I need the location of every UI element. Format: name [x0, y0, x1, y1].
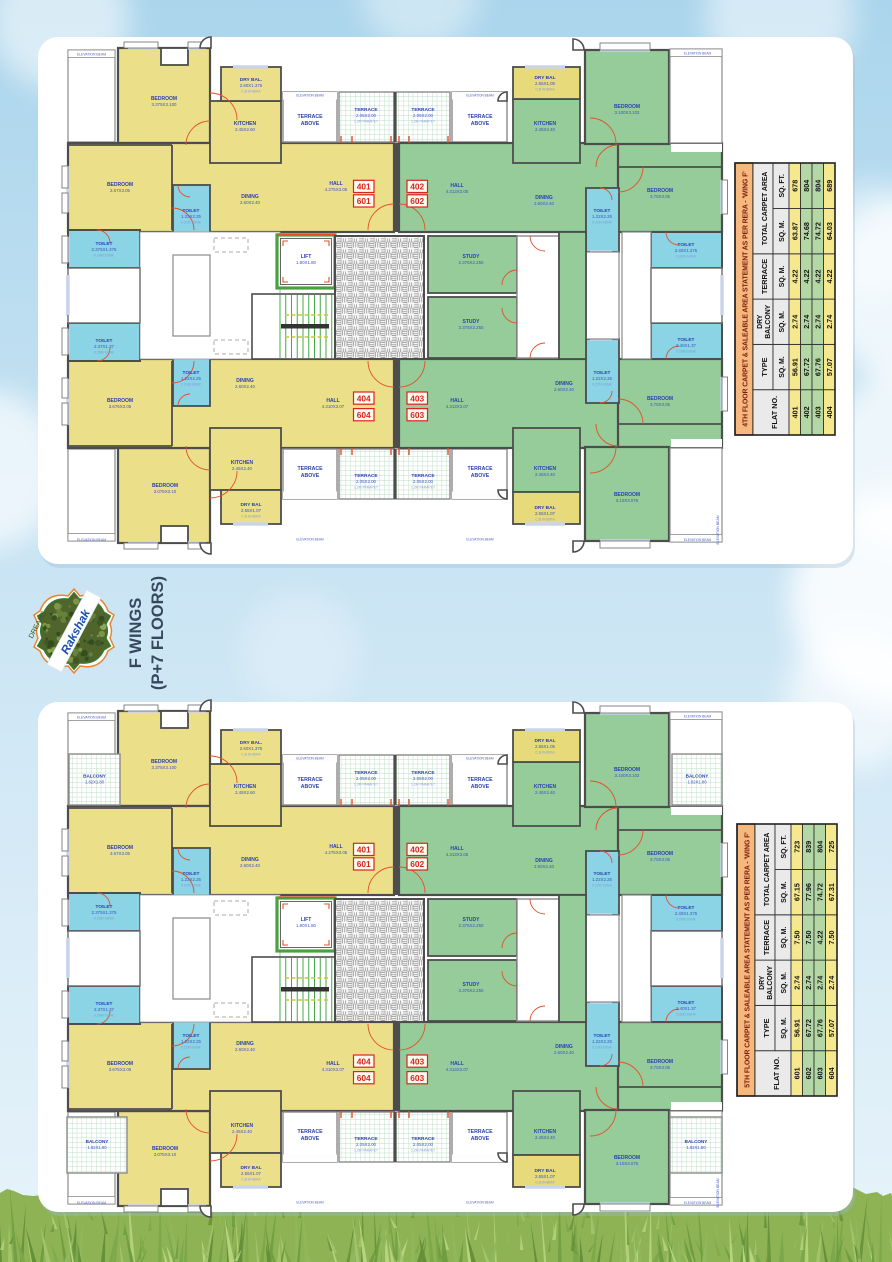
svg-text:3.67X3.05: 3.67X3.05 — [110, 851, 131, 856]
svg-text:839: 839 — [804, 841, 813, 853]
svg-text:3.10X3.075: 3.10X3.075 — [616, 1161, 639, 1166]
svg-text:TOILET: TOILET — [96, 338, 113, 344]
svg-text:SQ. M.: SQ. M. — [781, 1017, 788, 1039]
svg-text:ELEVATION BEAM: ELEVATION BEAM — [716, 1178, 720, 1207]
svg-text:804: 804 — [814, 180, 823, 192]
svg-text:804: 804 — [802, 180, 811, 192]
svg-text:74.72: 74.72 — [816, 883, 825, 901]
svg-text:TERRACE: TERRACE — [467, 466, 493, 472]
svg-text:67.15: 67.15 — [793, 883, 802, 901]
svg-text:2.375X1.375: 2.375X1.375 — [92, 247, 117, 252]
svg-text:ELEVATION BEAM: ELEVATION BEAM — [684, 538, 712, 542]
svg-text:1.2M PARAPET: 1.2M PARAPET — [354, 486, 378, 490]
svg-text:4TH FLOOR CARPET & SALEABLE AR: 4TH FLOOR CARPET & SALEABLE AREA STATEME… — [743, 171, 750, 427]
svg-text:1.82X1.80: 1.82X1.80 — [687, 780, 707, 785]
svg-text:57.07: 57.07 — [825, 358, 834, 376]
svg-text:STUDY: STUDY — [463, 319, 481, 325]
svg-text:5TH FLOOR CARPET & SALEABLE AR: 5TH FLOOR CARPET & SALEABLE AREA STATEME… — [745, 832, 752, 1088]
svg-text:STUDY: STUDY — [463, 917, 481, 923]
svg-text:TOILET: TOILET — [678, 1000, 695, 1006]
svg-text:404: 404 — [357, 1056, 371, 1066]
svg-text:C.B KHIDKA: C.B KHIDKA — [535, 88, 555, 92]
svg-text:1.82X1.80: 1.82X1.80 — [686, 1145, 706, 1150]
svg-text:DRY BAL: DRY BAL — [534, 75, 555, 81]
svg-text:DINING: DINING — [555, 381, 573, 387]
svg-text:67.31: 67.31 — [827, 883, 836, 901]
svg-text:TOILET: TOILET — [183, 208, 200, 214]
svg-text:74.72: 74.72 — [814, 222, 823, 240]
svg-text:2.60X2.40: 2.60X2.40 — [240, 200, 261, 205]
svg-text:ELEVATION BEAM: ELEVATION BEAM — [296, 538, 324, 542]
svg-text:1.2M PARAPET: 1.2M PARAPET — [411, 486, 435, 490]
svg-text:TERRACE: TERRACE — [467, 114, 493, 120]
svg-text:HALL: HALL — [450, 398, 463, 404]
svg-text:2.40X1.37: 2.40X1.37 — [676, 1006, 697, 1011]
svg-text:TERRACE: TERRACE — [354, 770, 378, 776]
svg-text:2.05X2.00: 2.05X2.00 — [413, 479, 434, 484]
svg-text:7.50: 7.50 — [827, 930, 836, 944]
svg-text:1.2M PARAPET: 1.2M PARAPET — [354, 120, 378, 124]
svg-text:7.50: 7.50 — [793, 930, 802, 944]
svg-text:F WINGS: F WINGS — [127, 598, 145, 669]
svg-text:SQ. FT.: SQ. FT. — [779, 174, 786, 197]
svg-text:BALCONY: BALCONY — [685, 1139, 708, 1144]
svg-text:(P+7 FLOORS): (P+7 FLOORS) — [149, 576, 167, 690]
svg-text:BALCONY: BALCONY — [767, 965, 774, 999]
svg-text:401: 401 — [357, 845, 371, 855]
svg-text:2.05X2.00: 2.05X2.00 — [356, 113, 377, 118]
svg-text:BEDROOM: BEDROOM — [647, 188, 673, 194]
svg-text:2.74: 2.74 — [804, 976, 813, 990]
svg-text:2.05X2.00: 2.05X2.00 — [356, 776, 377, 781]
svg-text:2.37X1.37: 2.37X1.37 — [94, 1007, 115, 1012]
svg-text:DINING: DINING — [241, 857, 259, 863]
svg-text:TERRACE: TERRACE — [297, 114, 323, 120]
svg-text:ELEVATION BEAM: ELEVATION BEAM — [684, 52, 712, 56]
svg-text:SQ. M.: SQ. M. — [779, 311, 786, 333]
svg-text:4.313X3.05: 4.313X3.05 — [446, 189, 469, 194]
svg-text:2.45X2.40: 2.45X2.40 — [535, 790, 556, 795]
svg-text:1.2M PARAPET: 1.2M PARAPET — [411, 120, 435, 124]
svg-text:BEDROOM: BEDROOM — [151, 96, 177, 102]
svg-text:ELEVATION BEAM: ELEVATION BEAM — [77, 1201, 106, 1205]
svg-text:2.55X1.07: 2.55X1.07 — [535, 511, 556, 516]
svg-text:KITCHEN: KITCHEN — [234, 121, 257, 127]
svg-text:1.2M PARAPET: 1.2M PARAPET — [354, 783, 378, 787]
svg-text:0.22M SUNK: 0.22M SUNK — [181, 383, 202, 387]
svg-text:2.60X2.40: 2.60X2.40 — [534, 864, 555, 869]
svg-text:ABOVE: ABOVE — [301, 1136, 320, 1142]
svg-text:TOILET: TOILET — [678, 242, 695, 248]
svg-text:601: 601 — [357, 859, 371, 869]
svg-text:TERRACE: TERRACE — [354, 1136, 378, 1142]
svg-text:C.B KHIDKA: C.B KHIDKA — [535, 1181, 555, 1185]
svg-text:BEDROOM: BEDROOM — [107, 1061, 133, 1067]
svg-text:TERRACE: TERRACE — [411, 107, 435, 113]
svg-text:0.28M SUNK: 0.28M SUNK — [94, 351, 115, 355]
svg-text:TERRACE: TERRACE — [354, 107, 378, 113]
svg-text:BEDROOM: BEDROOM — [107, 182, 133, 188]
svg-text:DRY BAL.: DRY BAL. — [240, 740, 262, 746]
svg-text:2.375X1.375: 2.375X1.375 — [92, 910, 117, 915]
svg-text:0.22M SUNK: 0.22M SUNK — [592, 1046, 613, 1050]
svg-text:ABOVE: ABOVE — [471, 121, 490, 127]
svg-text:TYPE: TYPE — [762, 1018, 771, 1037]
svg-text:TERRACE: TERRACE — [760, 259, 769, 294]
svg-text:TOILET: TOILET — [594, 370, 611, 376]
svg-text:3.375X3.100: 3.375X3.100 — [152, 765, 177, 770]
svg-text:2.45X2.40: 2.45X2.40 — [232, 466, 253, 471]
svg-text:DINING: DINING — [236, 378, 254, 384]
svg-text:TOILET: TOILET — [96, 1001, 113, 1007]
svg-text:2.37X1.37: 2.37X1.37 — [94, 344, 115, 349]
svg-text:TOTAL CARPET AREA: TOTAL CARPET AREA — [762, 172, 769, 246]
svg-text:HALL: HALL — [450, 846, 463, 852]
svg-text:BALCONY: BALCONY — [83, 774, 106, 779]
svg-text:BALCONY: BALCONY — [686, 774, 709, 779]
svg-text:TOILET: TOILET — [96, 241, 113, 247]
svg-text:1.22X2.25: 1.22X2.25 — [181, 877, 202, 882]
svg-text:4.313X3.07: 4.313X3.07 — [446, 404, 469, 409]
svg-text:3.075X3.10: 3.075X3.10 — [154, 1152, 177, 1157]
svg-text:3.375X3.100: 3.375X3.100 — [152, 102, 177, 107]
svg-text:2.45X2.40: 2.45X2.40 — [232, 1129, 253, 1134]
svg-text:404: 404 — [357, 393, 371, 403]
svg-text:2.60X2.40: 2.60X2.40 — [554, 387, 575, 392]
svg-text:DRY BAL: DRY BAL — [534, 1168, 555, 1174]
svg-text:3.100X3.102: 3.100X3.102 — [615, 110, 640, 115]
svg-text:TYPE: TYPE — [760, 357, 769, 376]
svg-text:2.05X2.00: 2.05X2.00 — [413, 1142, 434, 1147]
svg-text:1.80X1.80: 1.80X1.80 — [296, 260, 317, 265]
svg-text:BEDROOM: BEDROOM — [151, 759, 177, 765]
svg-text:0.22M SUNK: 0.22M SUNK — [592, 221, 613, 225]
svg-text:HALL: HALL — [329, 181, 342, 187]
svg-text:57.07: 57.07 — [827, 1019, 836, 1037]
svg-text:ELEVATION BEAM: ELEVATION BEAM — [296, 757, 324, 761]
svg-text:64.03: 64.03 — [825, 222, 834, 240]
svg-text:BEDROOM: BEDROOM — [614, 767, 640, 773]
svg-text:SQ. M.: SQ. M. — [781, 972, 788, 994]
svg-text:BEDROOM: BEDROOM — [152, 1146, 178, 1152]
svg-text:2.45X2.60: 2.45X2.60 — [235, 790, 256, 795]
svg-text:ELEVATION BEAM: ELEVATION BEAM — [466, 94, 494, 98]
svg-text:3.675X3.05: 3.675X3.05 — [109, 404, 132, 409]
svg-text:ELEVATION BEAM: ELEVATION BEAM — [77, 538, 106, 542]
svg-text:DRY BAL: DRY BAL — [534, 738, 555, 744]
svg-text:BEDROOM: BEDROOM — [152, 483, 178, 489]
svg-text:2.40X1.375: 2.40X1.375 — [675, 911, 698, 916]
svg-text:DRY: DRY — [757, 314, 764, 329]
svg-text:2.40X1.37: 2.40X1.37 — [676, 343, 697, 348]
svg-text:0.22M SUNK: 0.22M SUNK — [592, 383, 613, 387]
svg-text:1.22X2.25: 1.22X2.25 — [592, 214, 613, 219]
svg-text:TOILET: TOILET — [183, 370, 200, 376]
svg-text:4.313X3.05: 4.313X3.05 — [446, 852, 469, 857]
svg-text:KITCHEN: KITCHEN — [534, 466, 557, 472]
svg-text:HALL: HALL — [329, 844, 342, 850]
svg-text:DRY: DRY — [759, 975, 766, 990]
svg-text:ELEVATION BEAM: ELEVATION BEAM — [77, 53, 106, 57]
svg-text:2.05X2.00: 2.05X2.00 — [356, 1142, 377, 1147]
svg-text:601: 601 — [357, 196, 371, 206]
svg-text:TERRACE: TERRACE — [354, 473, 378, 479]
svg-text:74.68: 74.68 — [802, 222, 811, 240]
svg-text:DINING: DINING — [236, 1041, 254, 1047]
svg-text:2.60X2.40: 2.60X2.40 — [240, 863, 261, 868]
svg-text:3.100X3.102: 3.100X3.102 — [615, 773, 640, 778]
svg-text:67.76: 67.76 — [816, 1019, 825, 1037]
svg-text:FLAT NO.: FLAT NO. — [772, 1057, 781, 1090]
svg-text:0.28M SUNK: 0.28M SUNK — [94, 254, 115, 258]
svg-text:4.275X3.05: 4.275X3.05 — [325, 187, 348, 192]
svg-text:TERRACE: TERRACE — [467, 777, 493, 783]
svg-text:2.60X2.40: 2.60X2.40 — [235, 384, 256, 389]
svg-text:ELEVATION BEAM: ELEVATION BEAM — [716, 515, 720, 544]
svg-text:402: 402 — [802, 406, 811, 418]
svg-text:4.22: 4.22 — [814, 269, 823, 283]
svg-text:7.50: 7.50 — [804, 930, 813, 944]
svg-text:3.70X3.05: 3.70X3.05 — [650, 1065, 671, 1070]
svg-text:1.22X2.25: 1.22X2.25 — [181, 214, 202, 219]
svg-text:STUDY: STUDY — [463, 254, 481, 260]
svg-text:604: 604 — [357, 1073, 371, 1083]
svg-text:689: 689 — [825, 180, 834, 192]
svg-text:2.45X2.40: 2.45X2.40 — [535, 127, 556, 132]
svg-text:1.2M PARAPET: 1.2M PARAPET — [354, 1149, 378, 1153]
svg-text:3.375X2.250: 3.375X2.250 — [459, 325, 484, 330]
svg-text:ELEVATION BEAM: ELEVATION BEAM — [684, 1201, 712, 1205]
svg-text:0.28M SUNK: 0.28M SUNK — [676, 350, 697, 354]
svg-text:KITCHEN: KITCHEN — [234, 784, 257, 790]
svg-text:403: 403 — [410, 393, 424, 403]
svg-text:56.91: 56.91 — [793, 1019, 802, 1037]
svg-text:0.28M SUNK: 0.28M SUNK — [676, 918, 697, 922]
svg-text:DRY BAL: DRY BAL — [240, 502, 261, 508]
svg-text:404: 404 — [825, 406, 834, 418]
svg-text:ELEVATION BEAM: ELEVATION BEAM — [466, 757, 494, 761]
svg-text:TOTAL CARPET AREA: TOTAL CARPET AREA — [764, 833, 771, 907]
svg-text:2.55X1.07: 2.55X1.07 — [535, 1174, 556, 1179]
svg-text:2.05X2.00: 2.05X2.00 — [413, 776, 434, 781]
svg-text:3.375X2.250: 3.375X2.250 — [459, 988, 484, 993]
svg-text:402: 402 — [410, 182, 424, 192]
svg-text:804: 804 — [816, 841, 825, 853]
svg-text:2.74: 2.74 — [825, 315, 834, 329]
svg-text:BEDROOM: BEDROOM — [647, 851, 673, 857]
svg-text:DINING: DINING — [241, 194, 259, 200]
svg-text:0.22M SUNK: 0.22M SUNK — [181, 221, 202, 225]
svg-text:DRY BAL: DRY BAL — [240, 1165, 261, 1171]
svg-text:BEDROOM: BEDROOM — [647, 396, 673, 402]
svg-text:2.55X1.05: 2.55X1.05 — [535, 81, 556, 86]
svg-text:DINING: DINING — [535, 858, 553, 864]
svg-text:1.2M PARAPET: 1.2M PARAPET — [411, 783, 435, 787]
svg-text:2.60X2.40: 2.60X2.40 — [554, 1050, 575, 1055]
svg-text:2.74: 2.74 — [816, 976, 825, 990]
svg-text:2.55X1.07: 2.55X1.07 — [241, 508, 262, 513]
svg-text:402: 402 — [410, 845, 424, 855]
svg-text:TERRACE: TERRACE — [467, 1129, 493, 1135]
svg-text:TERRACE: TERRACE — [411, 770, 435, 776]
svg-text:601: 601 — [793, 1067, 802, 1079]
svg-text:KITCHEN: KITCHEN — [231, 1123, 254, 1129]
svg-text:2.05X2.00: 2.05X2.00 — [413, 113, 434, 118]
svg-text:2.375X2.250: 2.375X2.250 — [459, 260, 484, 265]
svg-text:3.10X3.075: 3.10X3.075 — [616, 498, 639, 503]
svg-text:1.80X1.80: 1.80X1.80 — [296, 923, 317, 928]
svg-text:2.40X1.375: 2.40X1.375 — [675, 248, 698, 253]
svg-text:67.72: 67.72 — [802, 358, 811, 376]
svg-text:2.55X1.07: 2.55X1.07 — [241, 1171, 262, 1176]
svg-text:C.B KHIDKA: C.B KHIDKA — [535, 518, 555, 522]
svg-text:ABOVE: ABOVE — [471, 1136, 490, 1142]
svg-text:DINING: DINING — [535, 195, 553, 201]
svg-text:1.22X2.25: 1.22X2.25 — [592, 1039, 613, 1044]
svg-text:2.45X2.40: 2.45X2.40 — [535, 1135, 556, 1140]
svg-text:TOILET: TOILET — [594, 871, 611, 877]
svg-text:0.22M SUNK: 0.22M SUNK — [181, 1046, 202, 1050]
svg-text:ELEVATION BEAM: ELEVATION BEAM — [466, 1201, 494, 1205]
svg-text:HALL: HALL — [326, 1061, 339, 1067]
svg-text:TOILET: TOILET — [594, 208, 611, 214]
svg-text:77.96: 77.96 — [804, 883, 813, 901]
svg-text:2.375X2.250: 2.375X2.250 — [459, 923, 484, 928]
svg-text:TERRACE: TERRACE — [297, 777, 323, 783]
svg-text:604: 604 — [827, 1067, 836, 1079]
svg-text:LIFT: LIFT — [301, 254, 312, 260]
svg-text:SQ. M.: SQ. M. — [779, 356, 786, 378]
svg-text:2.74: 2.74 — [802, 315, 811, 329]
svg-text:HALL: HALL — [450, 183, 463, 189]
svg-text:2.60X2.40: 2.60X2.40 — [235, 1047, 256, 1052]
svg-text:3.70X3.05: 3.70X3.05 — [650, 402, 671, 407]
svg-text:ELEVATION BEAM: ELEVATION BEAM — [296, 1201, 324, 1205]
svg-text:3.67X3.05: 3.67X3.05 — [110, 188, 131, 193]
svg-text:3.075X3.10: 3.075X3.10 — [154, 489, 177, 494]
svg-text:C.B KHIDKA: C.B KHIDKA — [241, 90, 261, 94]
svg-text:0.28M SUNK: 0.28M SUNK — [676, 1013, 697, 1017]
svg-text:603: 603 — [410, 410, 424, 420]
svg-text:0.22M SUNK: 0.22M SUNK — [592, 884, 613, 888]
svg-text:TERRACE: TERRACE — [411, 1136, 435, 1142]
svg-text:2.74: 2.74 — [791, 315, 800, 329]
svg-text:1.82X1.80: 1.82X1.80 — [85, 780, 105, 785]
svg-text:FLAT NO.: FLAT NO. — [770, 396, 779, 429]
svg-text:TERRACE: TERRACE — [411, 473, 435, 479]
svg-text:4.22: 4.22 — [816, 930, 825, 944]
svg-text:678: 678 — [791, 180, 800, 192]
svg-text:ABOVE: ABOVE — [301, 784, 320, 790]
svg-text:0.28M SUNK: 0.28M SUNK — [676, 255, 697, 259]
svg-text:TOILET: TOILET — [678, 337, 695, 343]
svg-text:SQ. M.: SQ. M. — [781, 881, 788, 903]
svg-text:401: 401 — [791, 406, 800, 418]
svg-text:2.74: 2.74 — [793, 976, 802, 990]
svg-text:725: 725 — [827, 841, 836, 853]
svg-text:2.74: 2.74 — [827, 976, 836, 990]
svg-text:0.28M SUNK: 0.28M SUNK — [94, 1014, 115, 1018]
svg-text:403: 403 — [410, 1056, 424, 1066]
svg-text:2.45X2.40: 2.45X2.40 — [535, 472, 556, 477]
svg-text:1.22X2.25: 1.22X2.25 — [592, 376, 613, 381]
svg-text:0.22M SUNK: 0.22M SUNK — [181, 884, 202, 888]
svg-text:3.70X3.05: 3.70X3.05 — [650, 857, 671, 862]
svg-text:STUDY: STUDY — [463, 982, 481, 988]
svg-text:603: 603 — [816, 1067, 825, 1079]
svg-text:BEDROOM: BEDROOM — [647, 1059, 673, 1065]
svg-text:602: 602 — [410, 859, 424, 869]
svg-text:ABOVE: ABOVE — [471, 784, 490, 790]
svg-text:67.76: 67.76 — [814, 358, 823, 376]
svg-text:KITCHEN: KITCHEN — [534, 1129, 557, 1135]
svg-text:SQ. M.: SQ. M. — [779, 266, 786, 288]
svg-text:3.70X3.05: 3.70X3.05 — [650, 194, 671, 199]
svg-text:0.28M SUNK: 0.28M SUNK — [94, 917, 115, 921]
svg-text:BEDROOM: BEDROOM — [614, 1155, 640, 1161]
svg-text:56.91: 56.91 — [791, 358, 800, 376]
svg-text:SQ. FT.: SQ. FT. — [781, 835, 788, 858]
svg-text:C.B KHIDKA: C.B KHIDKA — [241, 753, 261, 757]
svg-text:DINING: DINING — [555, 1044, 573, 1050]
svg-text:4.310X3.07: 4.310X3.07 — [322, 404, 345, 409]
svg-text:2.74: 2.74 — [814, 315, 823, 329]
svg-text:BEDROOM: BEDROOM — [107, 398, 133, 404]
svg-text:LIFT: LIFT — [301, 917, 312, 923]
svg-text:TERRACE: TERRACE — [297, 466, 323, 472]
svg-text:1.82X1.80: 1.82X1.80 — [87, 1145, 107, 1150]
svg-text:4.22: 4.22 — [802, 269, 811, 283]
svg-text:603: 603 — [410, 1073, 424, 1083]
svg-text:KITCHEN: KITCHEN — [534, 121, 557, 127]
svg-text:604: 604 — [357, 410, 371, 420]
svg-text:1.2M PARAPET: 1.2M PARAPET — [411, 1149, 435, 1153]
svg-text:ELEVATION BEAM: ELEVATION BEAM — [466, 538, 494, 542]
svg-text:1.22X2.25: 1.22X2.25 — [592, 877, 613, 882]
svg-text:C.B KHIDKA: C.B KHIDKA — [241, 515, 261, 519]
svg-text:DRY BAL: DRY BAL — [534, 505, 555, 511]
svg-text:DRY BAL.: DRY BAL. — [240, 77, 262, 83]
svg-text:4.310X3.07: 4.310X3.07 — [322, 1067, 345, 1072]
svg-text:2.45X2.60: 2.45X2.60 — [235, 127, 256, 132]
svg-text:BEDROOM: BEDROOM — [614, 492, 640, 498]
svg-text:TOILET: TOILET — [183, 871, 200, 877]
svg-text:ABOVE: ABOVE — [301, 473, 320, 479]
svg-text:401: 401 — [357, 182, 371, 192]
svg-text:3.675X3.05: 3.675X3.05 — [109, 1067, 132, 1072]
svg-text:403: 403 — [814, 406, 823, 418]
svg-text:KITCHEN: KITCHEN — [534, 784, 557, 790]
svg-text:2.05X2.00: 2.05X2.00 — [356, 479, 377, 484]
svg-text:KITCHEN: KITCHEN — [231, 460, 254, 466]
svg-text:SQ. M.: SQ. M. — [779, 220, 786, 242]
svg-text:BEDROOM: BEDROOM — [107, 845, 133, 851]
svg-text:BEDROOM: BEDROOM — [614, 104, 640, 110]
svg-text:BALCONY: BALCONY — [765, 304, 772, 338]
svg-text:1.22X2.25: 1.22X2.25 — [181, 376, 202, 381]
svg-text:TOILET: TOILET — [96, 904, 113, 910]
svg-text:4.313X3.07: 4.313X3.07 — [446, 1067, 469, 1072]
svg-text:TERRACE: TERRACE — [297, 1129, 323, 1135]
svg-text:HALL: HALL — [326, 398, 339, 404]
svg-text:TOILET: TOILET — [183, 1033, 200, 1039]
svg-text:723: 723 — [793, 841, 802, 853]
svg-text:SQ. M.: SQ. M. — [781, 927, 788, 949]
svg-text:602: 602 — [410, 196, 424, 206]
svg-text:2.55X1.05: 2.55X1.05 — [535, 744, 556, 749]
svg-text:67.72: 67.72 — [804, 1019, 813, 1037]
svg-text:1.22X2.25: 1.22X2.25 — [181, 1039, 202, 1044]
